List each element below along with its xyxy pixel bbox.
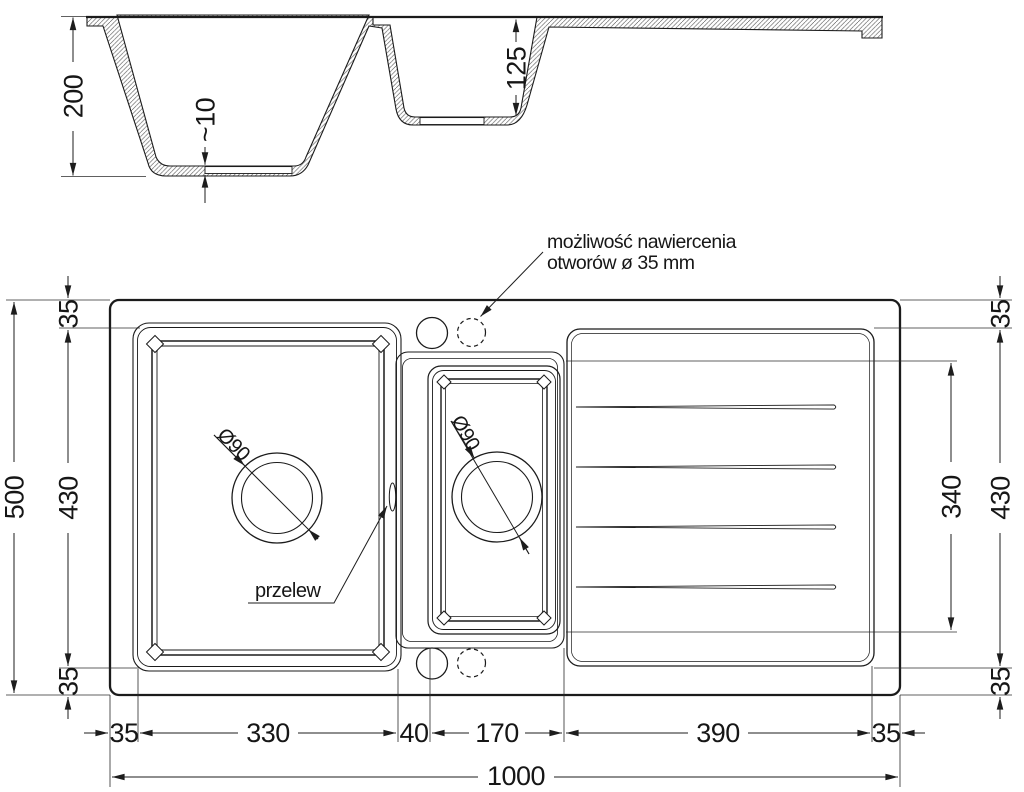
drill-note: możliwość nawiercenia otworów ø 35 mm xyxy=(481,231,737,317)
drainer-grooves xyxy=(576,405,836,589)
drawing-canvas: 200 ~10 125 xyxy=(0,0,1024,792)
optional-hole-top xyxy=(458,319,486,347)
small-bowl-corner-chamfers xyxy=(437,375,551,625)
main-drain-dim: Ø90 xyxy=(213,424,318,539)
bottom-dim-170: 170 xyxy=(475,718,519,748)
small-drain-dim: Ø90 xyxy=(447,412,529,554)
drill-note-line1: możliwość nawiercenia xyxy=(547,231,737,253)
small-bowl xyxy=(396,352,564,648)
dimension-bottom-chain: 35 330 40 170 390 35 xyxy=(84,718,925,748)
left-inner-value: 430 xyxy=(54,476,84,520)
small-bowl-drain-recess xyxy=(420,118,484,125)
drill-note-leader xyxy=(481,252,544,317)
drainer xyxy=(567,329,874,666)
dimension-total-height: 500 xyxy=(0,302,30,693)
sink-outline xyxy=(110,300,900,695)
grooves-height-value: 340 xyxy=(937,475,967,519)
sink-technical-drawing: 200 ~10 125 xyxy=(0,0,1024,792)
total-height-value: 500 xyxy=(0,476,30,520)
bottom-dim-390: 390 xyxy=(696,718,740,748)
tap-hole-top xyxy=(417,318,448,349)
overflow-label: przelew xyxy=(248,506,387,603)
depth-main-value: 200 xyxy=(59,75,89,119)
right-margin-bottom-value: 35 xyxy=(986,667,1016,696)
bottom-dim-40: 40 xyxy=(399,718,428,748)
plan-view: możliwość nawiercenia otworów ø 35 mm pr… xyxy=(0,231,1016,791)
small-drain-hole xyxy=(452,452,542,542)
main-drain-dia: Ø90 xyxy=(213,424,254,465)
depth-small-value: 125 xyxy=(502,47,532,91)
right-margin-top-value: 35 xyxy=(986,299,1016,328)
bottom-dim-35a: 35 xyxy=(109,718,138,748)
total-width-value: 1000 xyxy=(487,761,545,791)
bottom-thickness-value: ~10 xyxy=(191,98,221,142)
dimension-grooves-height: 340 xyxy=(937,363,967,630)
bottom-dim-35b: 35 xyxy=(871,718,900,748)
section-body xyxy=(87,15,882,176)
main-bowl-corner-chamfers xyxy=(147,336,390,661)
drill-note-line2: otworów ø 35 mm xyxy=(547,252,694,274)
left-margin-top-value: 35 xyxy=(54,299,84,328)
dimension-bottom-thickness: ~10 xyxy=(191,98,221,203)
overflow-slot xyxy=(389,483,395,511)
dimension-right-inner: 430 35 35 xyxy=(986,276,1016,719)
tap-holes xyxy=(417,318,486,680)
left-margin-bottom-value: 35 xyxy=(54,667,84,696)
overflow-text: przelew xyxy=(255,580,321,602)
main-bowl xyxy=(133,323,401,671)
dimension-total-width: 1000 xyxy=(112,761,898,791)
right-inner-value: 430 xyxy=(986,476,1016,520)
section-view: 200 ~10 125 xyxy=(59,15,884,203)
tap-hole-bottom xyxy=(417,648,448,679)
main-bowl-drain-recess xyxy=(205,167,292,174)
optional-hole-bottom xyxy=(458,649,486,677)
small-drain-dia: Ø90 xyxy=(447,412,484,455)
dimension-left-inner: 430 35 35 xyxy=(54,276,84,719)
bottom-dim-330: 330 xyxy=(246,718,290,748)
